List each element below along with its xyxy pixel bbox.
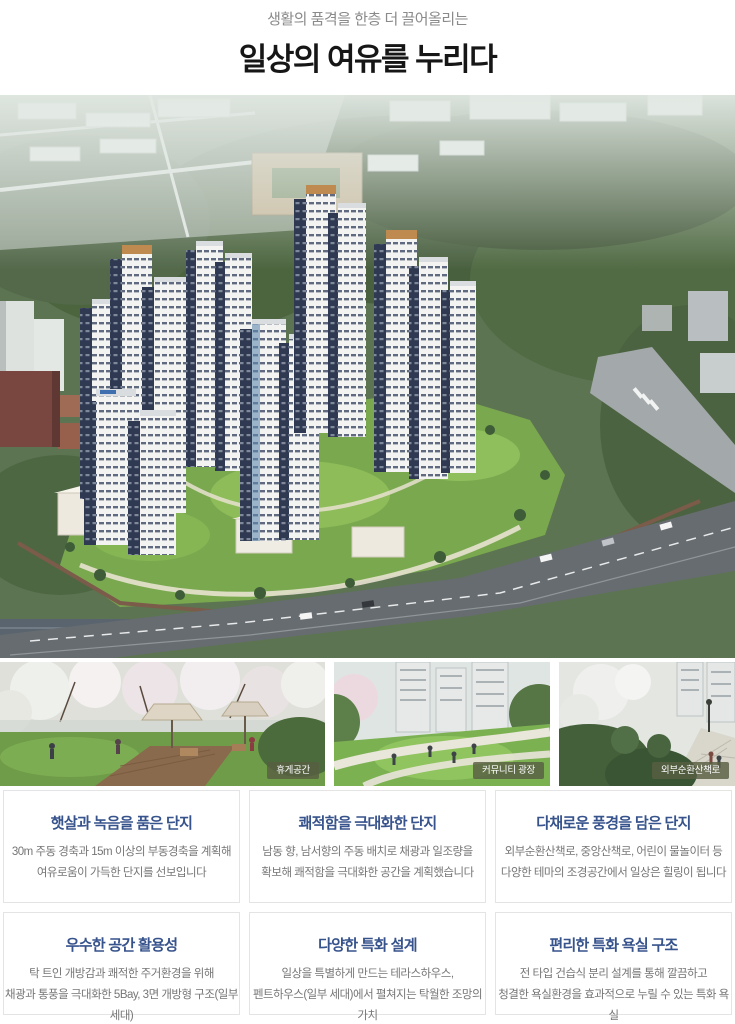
page-title: 일상의 여유를 누리다 bbox=[0, 34, 735, 79]
promo-page: 생활의 품격을 한층 더 끌어올리는 일상의 여유를 누리다 bbox=[0, 0, 735, 1024]
card-text-line: 탁 트인 개방감과 쾌적한 주거환경을 위해 bbox=[4, 964, 239, 985]
card-text-line: 30m 주동 경축과 15m 이상의 부동경축을 계획해 bbox=[4, 842, 239, 863]
header-subtitle: 생활의 품격을 한층 더 끌어올리는 bbox=[0, 8, 735, 29]
photo-walking-path: 외부순환산책로 bbox=[559, 662, 735, 786]
card-title: 다양한 특화 설계 bbox=[250, 934, 485, 955]
card-title: 우수한 공간 활용성 bbox=[4, 934, 239, 955]
feature-card-comfort: 쾌적함을 극대화한 단지 남동 향, 남서향의 주동 배치로 채광과 일조량을 … bbox=[249, 790, 486, 903]
photo-caption-walking-path: 외부순환산책로 bbox=[652, 762, 729, 780]
card-title: 쾌적함을 극대화한 단지 bbox=[250, 812, 485, 833]
card-text-line: 여유로움이 가득한 단지를 선보입니다 bbox=[4, 863, 239, 884]
page-header: 생활의 품격을 한층 더 끌어올리는 일상의 여유를 누리다 bbox=[0, 0, 735, 95]
card-title: 햇살과 녹음을 품은 단지 bbox=[4, 812, 239, 833]
card-text-line: 외부순환산책로, 중앙산책로, 어린이 물놀이터 등 bbox=[496, 842, 731, 863]
card-title: 다채로운 풍경을 담은 단지 bbox=[496, 812, 731, 833]
feature-card-bathroom: 편리한 특화 욕실 구조 전 타입 건습식 분리 설계를 통해 깔끔하고 청결한… bbox=[495, 912, 732, 1015]
photo-rest-area: 휴게공간 bbox=[0, 662, 325, 786]
card-text-line: 청결한 욕실환경을 효과적으로 누릴 수 있는 특화 욕실 bbox=[496, 985, 731, 1024]
card-title: 편리한 특화 욕실 구조 bbox=[496, 934, 731, 955]
photo-community-plaza: 커뮤니티 광장 bbox=[334, 662, 550, 786]
photo-caption-community-plaza: 커뮤니티 광장 bbox=[473, 762, 544, 780]
card-text-line: 다양한 테마의 조경공간에서 일상은 힐링이 됩니다 bbox=[496, 863, 731, 884]
card-text-line: 일상을 특별하게 만드는 테라스하우스, bbox=[250, 964, 485, 985]
aerial-view-image bbox=[0, 95, 735, 658]
card-text-line: 확보해 쾌적함을 극대화한 공간을 계획했습니다 bbox=[250, 863, 485, 884]
card-text-line: 펜트하우스(일부 세대)에서 펼쳐지는 탁월한 조망의 가치 bbox=[250, 985, 485, 1024]
card-text-line: 남동 향, 남서향의 주동 배치로 채광과 일조량을 bbox=[250, 842, 485, 863]
card-text-line: 전 타입 건습식 분리 설계를 통해 깔끔하고 bbox=[496, 964, 731, 985]
card-text-line: 채광과 통풍을 극대화한 5Bay, 3면 개방형 구조(일부 세대) bbox=[4, 985, 239, 1024]
aerial-rendering-graphic bbox=[0, 95, 735, 658]
photo-strip: 휴게공간 bbox=[0, 662, 735, 786]
feature-card-space: 우수한 공간 활용성 탁 트인 개방감과 쾌적한 주거환경을 위해 채광과 통풍… bbox=[3, 912, 240, 1015]
photo-caption-rest-area: 휴게공간 bbox=[267, 762, 319, 780]
feature-card-sunlight: 햇살과 녹음을 품은 단지 30m 주동 경축과 15m 이상의 부동경축을 계… bbox=[3, 790, 240, 903]
feature-card-scenery: 다채로운 풍경을 담은 단지 외부순환산책로, 중앙산책로, 어린이 물놀이터 … bbox=[495, 790, 732, 903]
feature-cards: 햇살과 녹음을 품은 단지 30m 주동 경축과 15m 이상의 부동경축을 계… bbox=[0, 790, 735, 1015]
feature-card-special-design: 다양한 특화 설계 일상을 특별하게 만드는 테라스하우스, 펜트하우스(일부 … bbox=[249, 912, 486, 1015]
